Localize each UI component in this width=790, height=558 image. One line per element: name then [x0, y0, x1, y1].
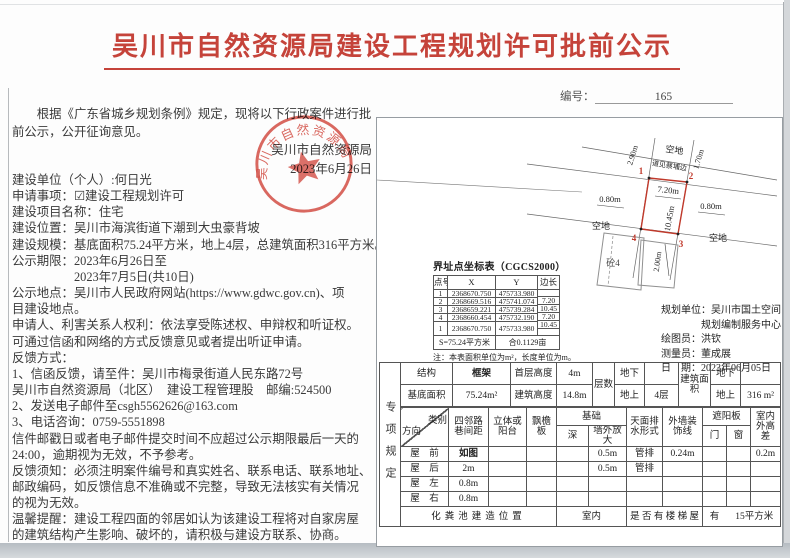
boundary-line [633, 138, 655, 278]
doc-number-label: 编号： [560, 91, 595, 103]
field-line: 2、发送电子邮件至csgh5562626@163.com [12, 398, 384, 414]
empty-cell [557, 477, 589, 492]
empty-cell [557, 462, 589, 477]
plan-unit-line2: 规划编制服务中心 [661, 319, 781, 334]
row-drain: 管排 [627, 447, 663, 462]
area-below-label: 地下 [711, 363, 741, 385]
bldg-height-label: 建筑高度 [511, 385, 557, 407]
empty-cell [527, 447, 557, 462]
edge-length: 7.20 [538, 313, 560, 321]
dimension-line [665, 244, 669, 276]
col-header-point: 点号 [434, 276, 448, 290]
seal-star-icon [285, 148, 325, 186]
row-dir: 屋 右 [401, 492, 449, 507]
coordinate-table-block: 界址点坐标表（CGCS2000） 点号 X Y 边长 1 2368670.750… [433, 258, 619, 363]
road-label: 道见蔡埔边 [651, 158, 687, 172]
point-no: 3 [434, 306, 448, 314]
empty-cell [538, 290, 560, 297]
row-dir: 屋 前 [401, 447, 449, 462]
point-y: 475741.074 [496, 298, 538, 306]
col-header-y: Y [496, 276, 538, 290]
dimension-line [597, 205, 624, 208]
field-line: 公示期限：2023年6月26日至 [12, 253, 384, 269]
row-neighbor: 0.8m [449, 492, 489, 507]
struct-value: 框架 [453, 363, 511, 385]
boundary-line [670, 140, 694, 280]
empty-cell [527, 492, 557, 507]
empty-cell [557, 447, 589, 462]
edge-length: 10.45 [538, 321, 560, 329]
above-value: 4层 [645, 385, 679, 407]
document-page: 吴川市自然资源局建设工程规划许可批前公示 编号：165 根据《广东省城乡规划条例… [0, 0, 790, 558]
point-label: 2 [689, 171, 694, 181]
surveyor-line: 测量员：董成展 [661, 348, 781, 363]
empty-cell [751, 492, 781, 507]
field-line: 2023年7月5日(共10日) [12, 269, 384, 285]
vacant-label-right: 空地 [709, 232, 727, 243]
category-label: 类别 [402, 416, 447, 427]
empty-cell [741, 363, 781, 385]
parcel-outline [641, 178, 687, 234]
point-no: 1 [434, 322, 448, 336]
point-x: 2368670.750 [448, 290, 496, 298]
empty-cell [627, 492, 663, 507]
point-y: 475739.284 [496, 306, 538, 314]
col-window: 窗 [727, 426, 751, 447]
col-height-diff: 室内外高差 [751, 408, 781, 447]
scan-edge-top [0, 4, 790, 5]
point-x: 2368669.516 [448, 298, 496, 306]
bldg-height-value: 14.8m [557, 385, 593, 407]
corner-point [648, 177, 651, 180]
area-above-label: 地上 [711, 385, 741, 407]
coordinate-table-title: 界址点坐标表（CGCS2000） [433, 258, 619, 273]
empty-cell [489, 477, 527, 492]
septic-value: 室内 [557, 507, 627, 527]
dim-top: 7.20m [657, 184, 680, 196]
edge-length: 10.45 [538, 305, 560, 313]
row-dir: 屋 后 [401, 462, 449, 477]
neighbor-structure-outline [638, 240, 678, 288]
row-dir: 屋 左 [401, 477, 449, 492]
corner-point [677, 233, 680, 236]
empty-cell [751, 477, 781, 492]
spec-summary-table: 结构 框架 首层高度 4m 层数 地下 建筑面积 地下 基底面积 75.24m² [400, 362, 781, 407]
area-above-value: 316 m² [741, 385, 781, 407]
field-line: 邮政编码，如反馈信息不准确或不完整，导致无法核实有关情况 [12, 479, 384, 495]
empty-cell [727, 477, 751, 492]
boundary-line [527, 164, 777, 196]
corner-point [686, 181, 689, 184]
stair-area: 15平方米 [735, 512, 773, 522]
empty-cell [727, 492, 751, 507]
notice-fields: 建设单位（个人）:何日光 申请事项：☑建设工程规划许可 建设项目名称：住宅 建设… [12, 172, 384, 544]
empty-cell [727, 447, 751, 462]
dimension-line [698, 212, 725, 215]
spec-detail-table: 类别 方向 四邻路巷间距 立体或阳台 飘檐板 基础 天面排水形式 外墙装饰线 遮… [400, 407, 781, 527]
col-wall-deco: 外墙装饰线 [663, 408, 703, 447]
scan-edge-right [784, 0, 790, 558]
empty-cell [703, 492, 727, 507]
plan-unit-line: 规划单位：吴川市国土空间 [661, 304, 781, 319]
direction-label: 方向 [402, 427, 447, 438]
dim-right-offset: 0.80m [700, 201, 722, 211]
coordinate-table: 点号 X Y 边长 1 2368670.750 475733.980 7.20 … [433, 275, 560, 350]
doc-number-value: 165 [595, 91, 733, 104]
above-label: 地上 [615, 385, 645, 407]
parcel-area-mu: 合0.1129亩 [496, 336, 560, 350]
spec-block: 专项规定 结构 框架 首层高度 4m 层数 地下 建筑面积 地下 [379, 362, 781, 527]
side-label: 专项规定 [379, 362, 400, 527]
field-line: 可通过信函和网络的方式反馈意见或者提出听证申请。 [12, 334, 384, 350]
empty-cell [703, 462, 727, 477]
field-line: 建设位置：吴川市海滨街道下潮到大虫豪背坡 [12, 220, 384, 236]
point-x: 2368660.454 [448, 314, 496, 322]
stair-label: 是 否 有 楼 梯 屋 [627, 507, 703, 527]
dimension-line [655, 196, 681, 199]
dim-upper-left: 2.90m [625, 144, 640, 167]
col-expand: 墙外放大 [589, 426, 627, 447]
point-no: 4 [434, 314, 448, 322]
field-line: 24:00，逾期视为无效，不予参考。 [12, 447, 384, 463]
row-drain: 管排 [627, 462, 663, 477]
category-direction-header: 类别 方向 [401, 408, 449, 447]
parcel-area: S=75.24平方米 [434, 336, 496, 350]
dim-left-offset: 0.80m [599, 194, 621, 204]
notice-title-text: 吴川市自然资源局建设工程规划许可批前公示 [104, 26, 680, 70]
col-header-edge: 边长 [538, 276, 560, 290]
empty-cell [727, 462, 751, 477]
field-line: 的建筑结构产生影响、破坏的，请积极与建设方联系、协商。 [12, 527, 384, 543]
row-neighbor: 如图 [449, 447, 489, 462]
floors-label: 层数 [593, 363, 615, 407]
stair-value: 有 [710, 512, 720, 522]
point-label: 1 [639, 166, 644, 176]
below-label: 地下 [615, 363, 645, 385]
doc-number: 编号：165 [560, 88, 775, 104]
col-drain: 天面排水形式 [627, 408, 663, 447]
col-header-x: X [448, 276, 496, 290]
field-line: 温馨提醒：建设工程四面的邻居如认为该建设工程将对自家房屋 [12, 511, 384, 527]
field-line: 的视为无效。 [12, 495, 384, 511]
field-line: 目建设地点。 [12, 301, 384, 317]
row-neighbor: 2m [449, 462, 489, 477]
empty-cell [538, 329, 560, 336]
boundary-line [582, 147, 777, 180]
point-y: 475733.980 [496, 290, 538, 298]
col-foundation: 基础 [557, 408, 627, 426]
boundary-line [377, 180, 582, 192]
col-neighbor: 四邻路巷间距 [449, 408, 489, 447]
point-label: 4 [632, 233, 637, 243]
first-floor-value: 4m [557, 363, 593, 385]
empty-cell [589, 477, 627, 492]
struct-label: 结构 [401, 363, 453, 385]
row-hdiff: 0.2m [751, 447, 781, 462]
vacant-label-left: 空地 [592, 220, 610, 231]
row-wall: 0.24m [663, 447, 703, 462]
empty-cell [527, 462, 557, 477]
dim-lower: 2.00m [652, 250, 663, 272]
field-line: 吴川市自然资源局（北区） 建设工程管理股 邮编:524500 [12, 382, 384, 398]
col-depth: 深 [557, 426, 589, 447]
boundary-line [527, 214, 777, 246]
point-y: 475732.190 [496, 314, 538, 322]
row-expand: 0.5m [589, 447, 627, 462]
drafter-line: 绘图员：洪钦 [661, 333, 781, 348]
corner-point [640, 228, 643, 231]
base-area-label: 基底面积 [401, 385, 453, 407]
row-expand: 0.5m [589, 462, 627, 477]
point-y: 475733.980 [496, 322, 538, 336]
bldg-area-label: 建筑面积 [679, 363, 711, 407]
empty-cell [489, 462, 527, 477]
field-line: 反馈须知：必须注明案件编号和真实姓名、联系电话、联系地址、 [12, 463, 384, 479]
first-floor-label: 首层高度 [511, 363, 557, 385]
field-line: 公示地点：吴川市人民政府网站(https://www.gdwc.gov.cn)、… [12, 285, 384, 301]
empty-cell [589, 492, 627, 507]
col-eave: 飘檐板 [527, 408, 557, 447]
empty-cell [751, 462, 781, 477]
point-no: 2 [434, 298, 448, 306]
side-label-text: 专项规定 [382, 401, 398, 489]
empty-cell [663, 492, 703, 507]
col-door: 门 [703, 426, 727, 447]
field-line: 反馈方式： [12, 350, 384, 366]
point-x: 2368659.221 [448, 306, 496, 314]
dim-upper-right: 1.70m [691, 148, 706, 171]
stair-value-cell: 有15平方米 [703, 507, 781, 527]
attachment-panel: 1 2 3 4 7.20m 10.45m 0.80m 0.80m 2.90m 1… [376, 117, 783, 547]
field-line: 信件邮戳日或者电子邮件提交时间不应超过公示期限最后一天的 [12, 431, 384, 447]
field-line: 1、信函反馈，请至件：吴川市梅录街道人民东路72号 [12, 366, 384, 382]
point-no: 1 [434, 290, 448, 298]
base-area-value: 75.24m² [453, 385, 511, 407]
vacant-label-top: 空地 [665, 143, 684, 156]
empty-cell [645, 363, 679, 385]
empty-cell [557, 492, 589, 507]
point-x: 2368670.750 [448, 322, 496, 336]
empty-cell [663, 462, 703, 477]
empty-cell [663, 477, 703, 492]
edge-length: 7.20 [538, 297, 560, 305]
empty-cell [703, 477, 727, 492]
col-sunshade: 遮阳板 [703, 408, 751, 426]
field-line: 建设规模：基底面积75.24平方米，地上4层，总建筑面积316平方米。 [12, 237, 384, 253]
empty-cell [627, 477, 663, 492]
scan-edge-left [8, 88, 9, 542]
spec-tables: 结构 框架 首层高度 4m 层数 地下 建筑面积 地下 基底面积 75.24m² [400, 362, 781, 527]
empty-cell [527, 477, 557, 492]
field-line: 3、电话咨询：0759-5551898 [12, 414, 384, 430]
empty-cell [489, 447, 527, 462]
empty-cell [703, 447, 727, 462]
empty-cell [489, 492, 527, 507]
field-line: 申请人、利害关系人权利：依法享受陈述权、申辩权和听证权。 [12, 317, 384, 333]
col-balcony: 立体或阳台 [489, 408, 527, 447]
notice-title: 吴川市自然资源局建设工程规划许可批前公示 [0, 26, 784, 70]
septic-label: 化粪池建造位置 [401, 507, 557, 527]
dim-right-edge: 10.45m [662, 205, 676, 232]
row-neighbor: 0.8m [449, 477, 489, 492]
point-label: 3 [679, 239, 684, 249]
